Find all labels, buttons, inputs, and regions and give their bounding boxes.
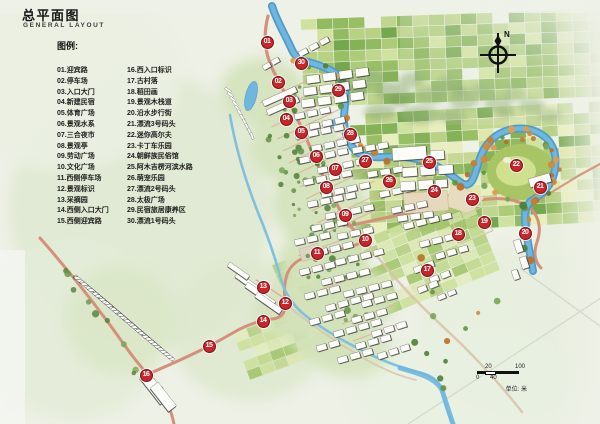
legend-item: 08.景观亭 bbox=[57, 142, 109, 153]
legend-item: 14.西侧入口大门 bbox=[57, 206, 109, 217]
fade-right bbox=[552, 0, 600, 424]
legend-item: 25.阿木吉楞河滨水路 bbox=[127, 163, 193, 174]
legend-item: 02.停车场 bbox=[57, 77, 109, 88]
scale-label-100: 100 bbox=[515, 364, 525, 370]
legend-item: 22.迷你高尔夫 bbox=[127, 131, 193, 142]
scale-label-40: 40 bbox=[490, 375, 497, 381]
legend-item: 20.沿水步行街 bbox=[127, 109, 193, 120]
legend-item: 30.漂流1号码头 bbox=[127, 217, 193, 228]
legend-item: 10.文化广场 bbox=[57, 163, 109, 174]
legend-item: 23.卡丁车乐园 bbox=[127, 142, 193, 153]
scale-label-0: 0 bbox=[476, 375, 479, 381]
legend-heading: 图例: bbox=[57, 39, 78, 52]
legend-item: 04.新建民宿 bbox=[57, 98, 109, 109]
legend-item: 29.民宿旅居康养区 bbox=[127, 206, 193, 217]
page-subtitle: GENERAL LAYOUT bbox=[23, 22, 105, 29]
legend-item: 11.西侧停车场 bbox=[57, 174, 109, 185]
legend-item: 27.漂流2号码头 bbox=[127, 185, 193, 196]
scale-label-20: 20 bbox=[485, 364, 492, 370]
legend-item: 06.景观水系 bbox=[57, 120, 109, 131]
scale-bar: 20 100 0 40 单位: 米 bbox=[477, 364, 533, 393]
legend-item: 13.采摘园 bbox=[57, 196, 109, 207]
compass-north-label: N bbox=[504, 30, 510, 39]
legend-item: 28.太极广场 bbox=[127, 196, 193, 207]
north-arrow: N bbox=[479, 30, 519, 76]
legend-item: 15.西侧迎宾路 bbox=[57, 217, 109, 228]
legend-item: 17.古村落 bbox=[127, 77, 193, 88]
legend-column-2: 16.西入口标识17.古村落18.稻田画19.景观木栈道20.沿水步行街21.漂… bbox=[127, 66, 193, 228]
legend-item: 21.漂流3号码头 bbox=[127, 120, 193, 131]
scale-unit-label: 单位: 米 bbox=[477, 384, 527, 393]
legend-item: 19.景观木栈道 bbox=[127, 98, 193, 109]
site-plan-page: 总平面图 GENERAL LAYOUT 图例: 01.迎宾路02.停车场03.入… bbox=[0, 0, 600, 424]
compass-icon bbox=[479, 30, 519, 76]
legend-item: 18.稻田画 bbox=[127, 88, 193, 99]
legend-item: 03.入口大门 bbox=[57, 88, 109, 99]
legend-item: 26.萌宠乐园 bbox=[127, 174, 193, 185]
fade-top bbox=[0, 0, 600, 13]
legend-item: 01.迎宾路 bbox=[57, 66, 109, 77]
legend-column-1: 01.迎宾路02.停车场03.入口大门04.新建民宿05.体育广场06.景观水系… bbox=[57, 66, 109, 228]
legend-item: 12.景观标识 bbox=[57, 185, 109, 196]
legend-item: 24.朝鲜族民俗馆 bbox=[127, 152, 193, 163]
legend-item: 05.体育广场 bbox=[57, 109, 109, 120]
legend-item: 09.劳动广场 bbox=[57, 152, 109, 163]
legend-item: 07.三合夜市 bbox=[57, 131, 109, 142]
blank-corner bbox=[0, 250, 25, 424]
legend-item: 16.西入口标识 bbox=[127, 66, 193, 77]
